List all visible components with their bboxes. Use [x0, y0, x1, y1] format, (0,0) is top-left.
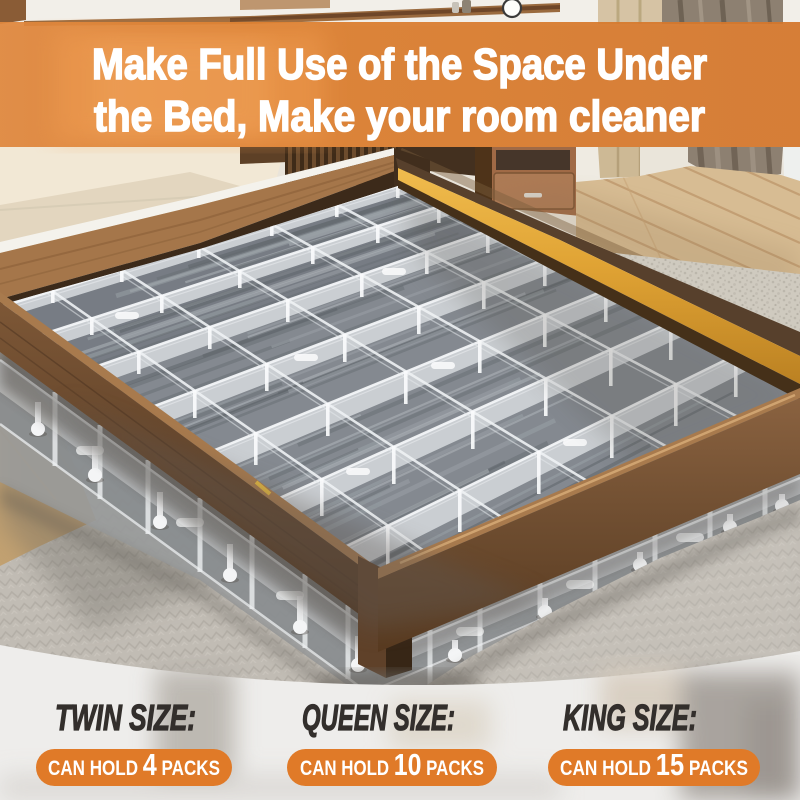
svg-text:KING SIZE:: KING SIZE: [563, 697, 697, 738]
svg-text:the Bed, Make your room cleane: the Bed, Make your room cleaner [94, 92, 705, 141]
svg-text:QUEEN SIZE:: QUEEN SIZE: [302, 697, 455, 738]
svg-text:TWIN SIZE:: TWIN SIZE: [55, 697, 196, 738]
svg-text:Make Full Use of the Space Und: Make Full Use of the Space Under [92, 40, 707, 89]
